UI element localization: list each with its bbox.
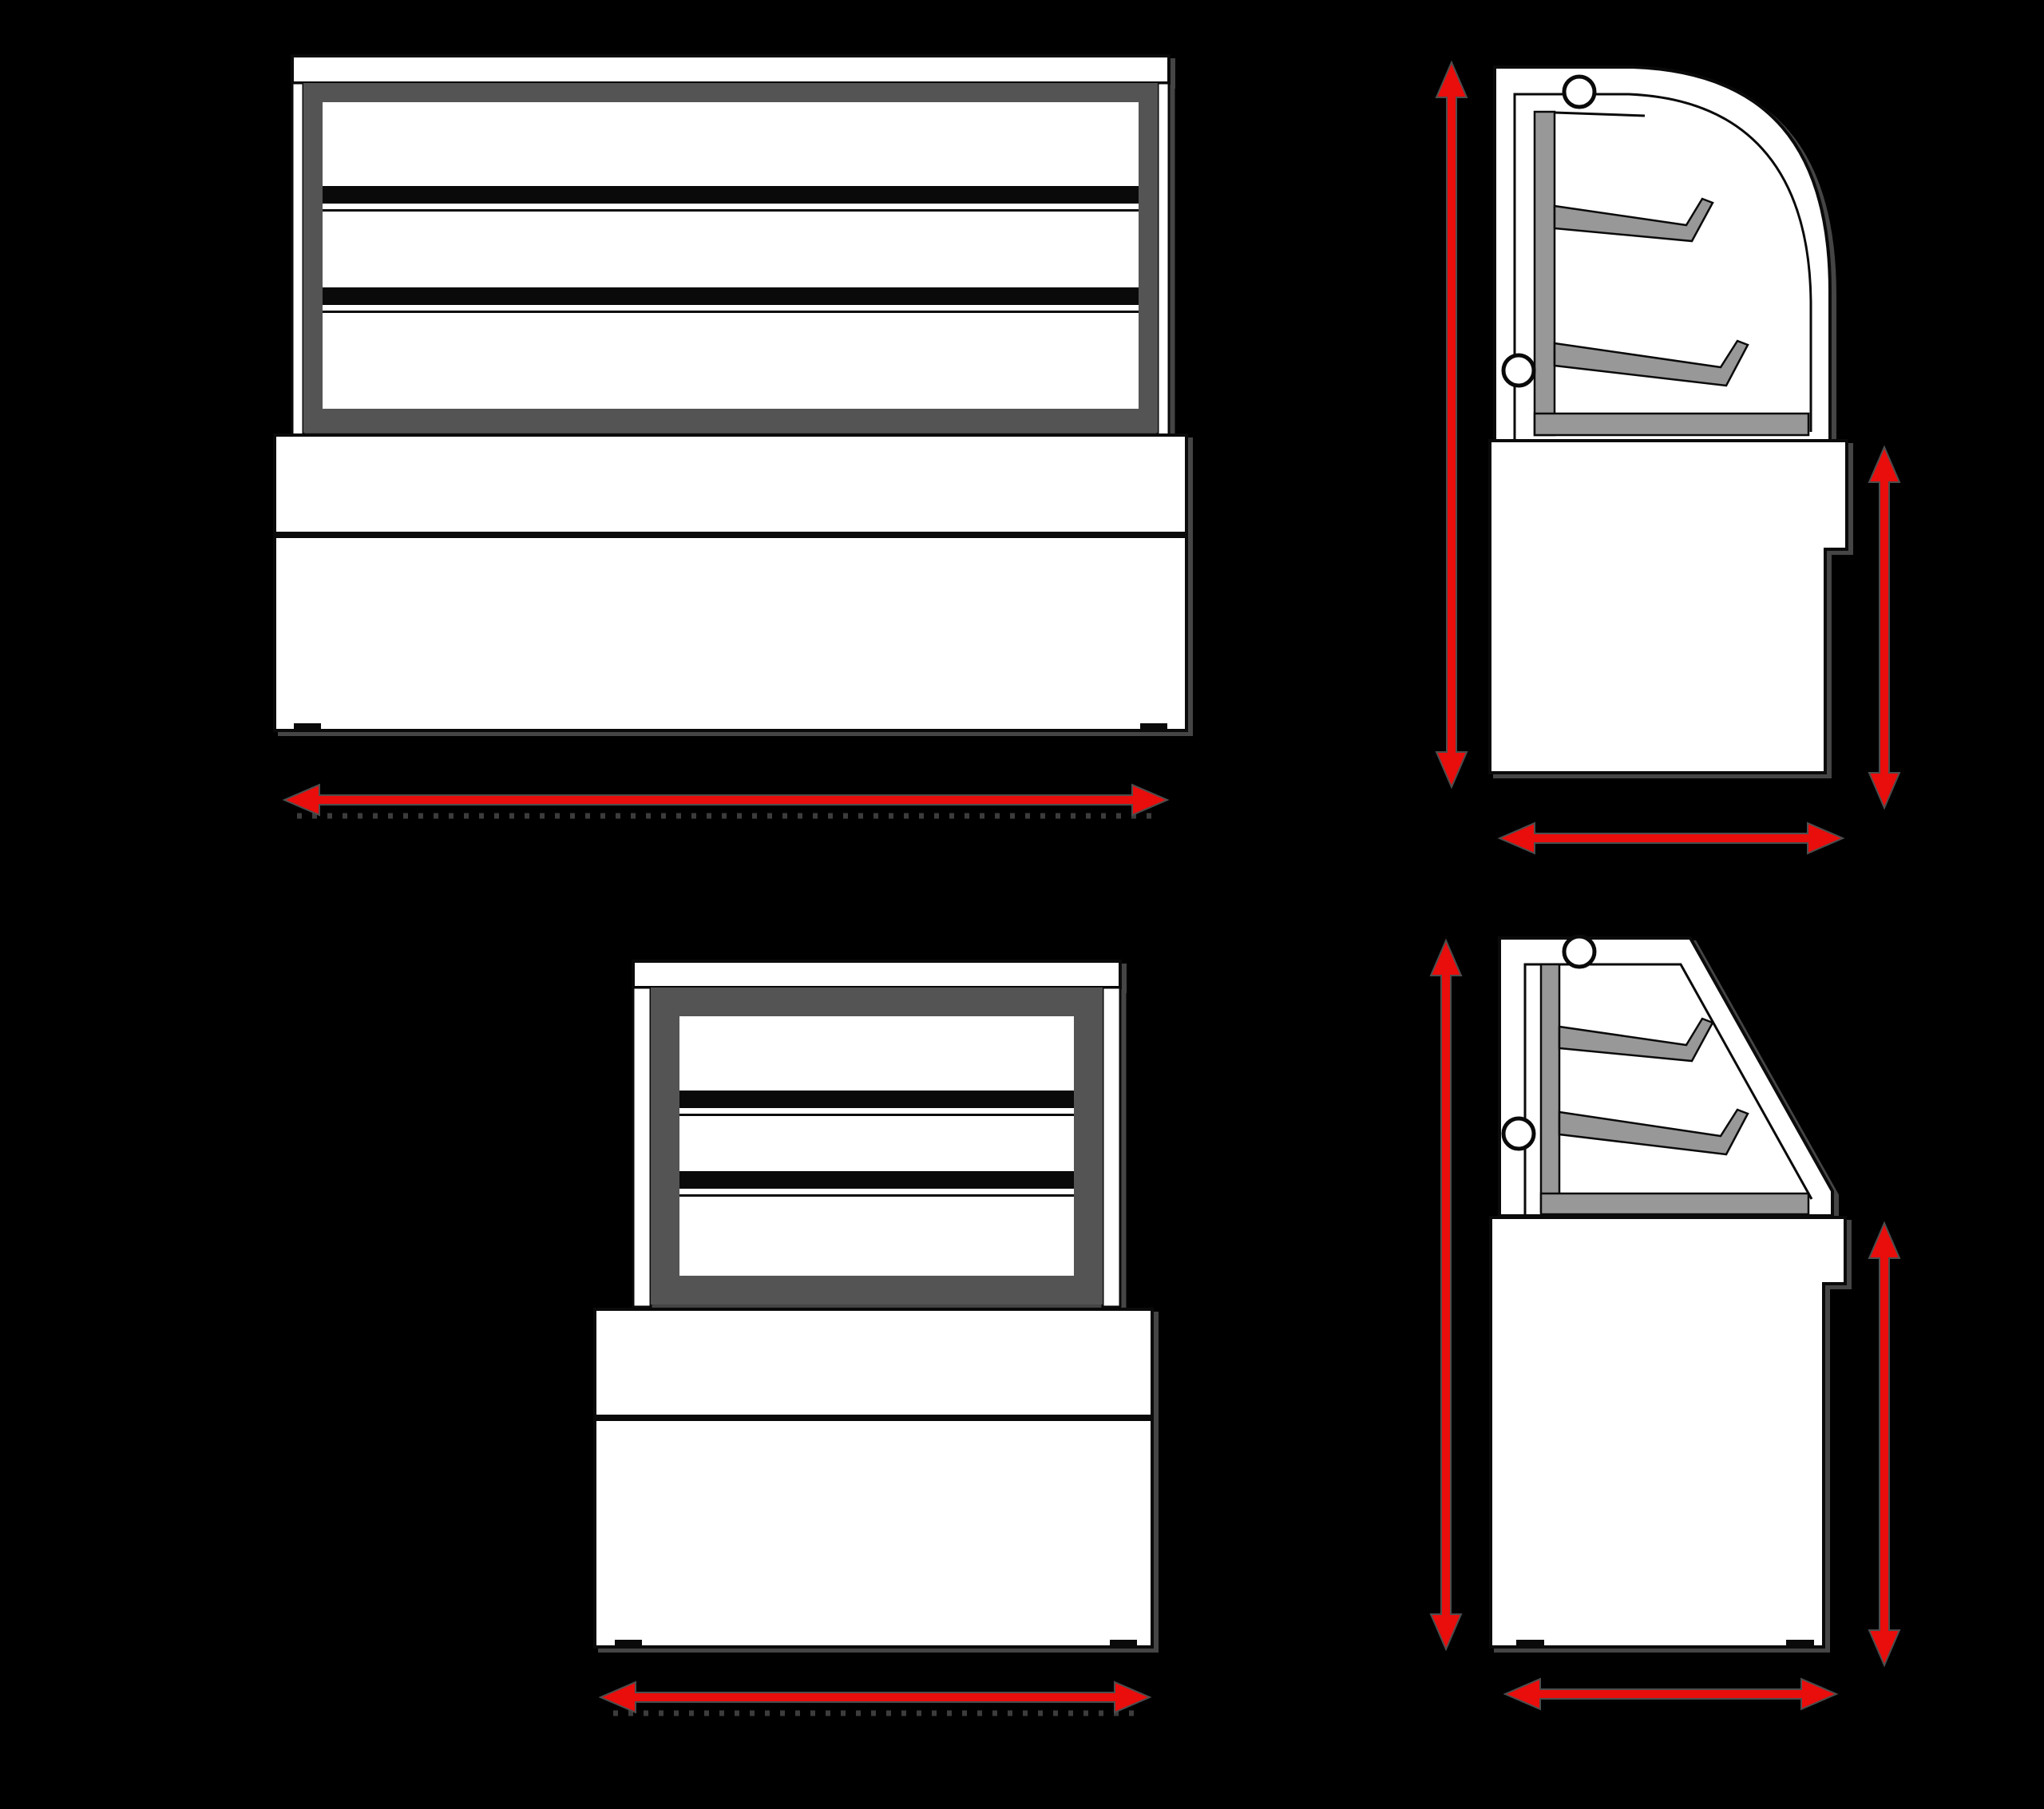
foot-tick <box>294 723 321 730</box>
shelf-hairline <box>323 209 1139 212</box>
depth-dimension-arrow <box>1505 1679 1836 1709</box>
left-pillar <box>292 83 303 435</box>
shelf-bar <box>679 1171 1074 1189</box>
right-pillar <box>1158 83 1169 435</box>
overall-height-dimension-arrow <box>1431 940 1461 1649</box>
display-interior <box>679 1016 1074 1276</box>
front-view-narrow <box>595 961 1152 1647</box>
bottom-deck <box>1541 1193 1808 1214</box>
width-dimension-arrow <box>284 785 1167 815</box>
side-view-curved <box>1490 67 1847 773</box>
hinge-knob-icon <box>1503 1118 1534 1149</box>
side-view-flat <box>1491 936 1845 1647</box>
base-height-dimension-arrow <box>1869 447 1899 808</box>
depth-dimension-arrow <box>1499 823 1843 853</box>
back-panel <box>1541 964 1559 1212</box>
display-interior <box>323 102 1139 409</box>
width-dimension-arrow <box>600 1682 1150 1712</box>
foot-tick <box>615 1640 642 1647</box>
overall-height-dimension-arrow <box>1436 62 1467 787</box>
foot-tick <box>1786 1640 1814 1647</box>
base-cabinet-notched <box>1490 441 1847 773</box>
foot-tick <box>1516 1640 1544 1647</box>
base-cabinet <box>595 1309 1152 1647</box>
foot-tick <box>1140 723 1167 730</box>
base-cabinet-notched <box>1491 1217 1845 1647</box>
shelf-bar <box>323 186 1139 204</box>
base-divider-line <box>595 1415 1152 1421</box>
shelf-hairline <box>679 1114 1074 1116</box>
right-pillar <box>1103 988 1120 1307</box>
canopy-strip <box>292 56 1169 83</box>
hinge-knob-icon <box>1564 77 1594 107</box>
bottom-deck <box>1535 414 1808 435</box>
shelf-hairline <box>679 1194 1074 1197</box>
back-panel <box>1535 112 1555 435</box>
shelf-bar <box>679 1091 1074 1108</box>
canopy-strip <box>633 961 1120 988</box>
hinge-knob-icon <box>1503 355 1534 386</box>
base-divider-line <box>275 532 1186 538</box>
display-case-dimension-diagram <box>0 0 2044 1809</box>
foot-tick <box>1110 1640 1137 1647</box>
base-cabinet <box>275 435 1186 730</box>
technical-drawing-canvas <box>0 0 2044 1809</box>
base-height-dimension-arrow <box>1869 1223 1899 1665</box>
front-view-wide <box>275 56 1186 730</box>
hinge-knob-icon <box>1564 936 1594 967</box>
left-pillar <box>633 988 651 1307</box>
shelf-hairline <box>323 311 1139 313</box>
shelf-bar <box>323 287 1139 305</box>
